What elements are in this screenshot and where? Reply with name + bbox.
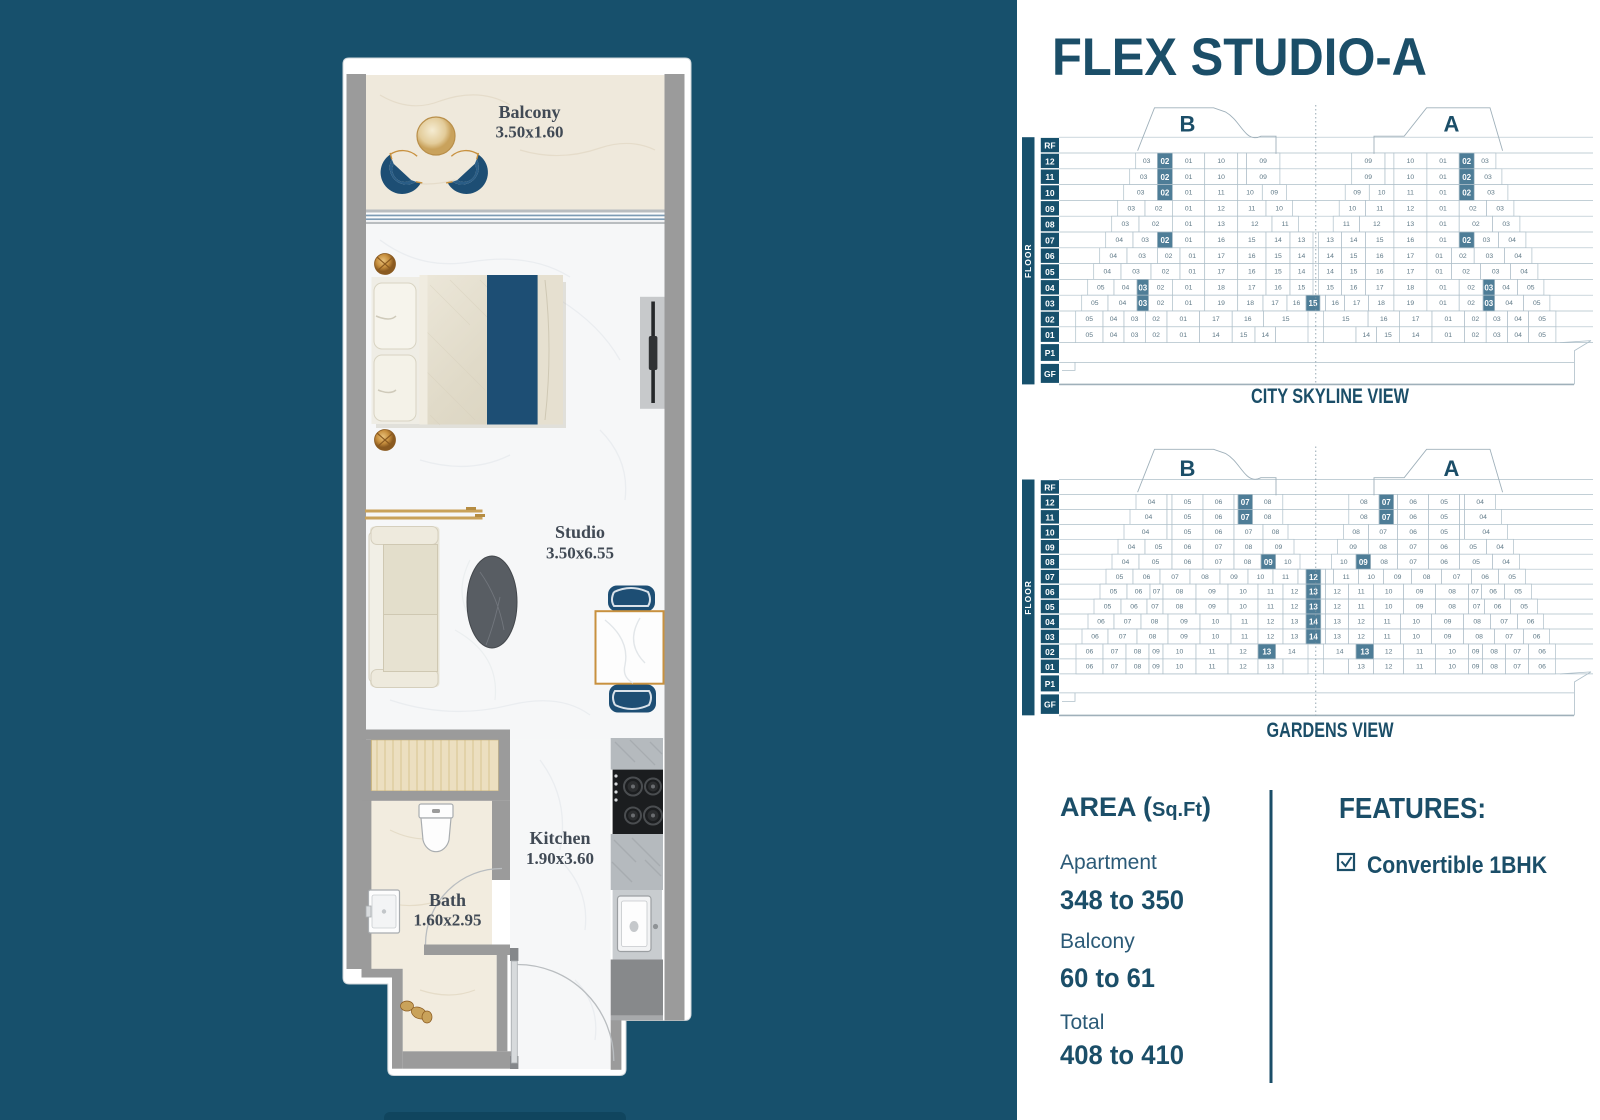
svg-text:13: 13 xyxy=(1357,664,1365,671)
svg-text:05: 05 xyxy=(1045,602,1055,612)
svg-text:06: 06 xyxy=(1091,634,1099,641)
svg-text:03: 03 xyxy=(1131,316,1139,323)
svg-text:03: 03 xyxy=(1138,299,1147,308)
svg-text:03: 03 xyxy=(1138,253,1146,260)
svg-text:3.50x6.55: 3.50x6.55 xyxy=(546,544,614,563)
svg-text:P1: P1 xyxy=(1045,679,1056,689)
svg-text:02: 02 xyxy=(1160,173,1169,182)
svg-text:05: 05 xyxy=(1116,574,1124,581)
svg-text:03: 03 xyxy=(1132,269,1140,276)
svg-text:01: 01 xyxy=(1185,284,1193,291)
svg-text:05: 05 xyxy=(1440,499,1448,506)
svg-text:Balcony: Balcony xyxy=(1060,930,1135,953)
svg-text:10: 10 xyxy=(1176,664,1184,671)
svg-text:03: 03 xyxy=(1131,332,1139,339)
svg-text:14: 14 xyxy=(1212,332,1220,339)
svg-text:14: 14 xyxy=(1336,649,1344,656)
svg-text:03: 03 xyxy=(1484,174,1492,181)
svg-text:12: 12 xyxy=(1217,205,1225,212)
svg-text:03: 03 xyxy=(1492,269,1500,276)
svg-text:01: 01 xyxy=(1185,221,1193,228)
svg-text:10: 10 xyxy=(1045,188,1055,198)
svg-text:04: 04 xyxy=(1476,499,1484,506)
svg-text:02: 02 xyxy=(1469,205,1477,212)
svg-text:01: 01 xyxy=(1439,221,1447,228)
svg-text:10: 10 xyxy=(1212,634,1220,641)
svg-text:04: 04 xyxy=(1045,617,1055,627)
svg-text:10: 10 xyxy=(1239,589,1247,596)
svg-text:06: 06 xyxy=(1481,574,1489,581)
svg-text:05: 05 xyxy=(1086,332,1094,339)
svg-text:10: 10 xyxy=(1275,205,1283,212)
svg-text:07: 07 xyxy=(1119,634,1127,641)
svg-text:07: 07 xyxy=(1111,649,1119,656)
svg-text:09: 09 xyxy=(1365,174,1373,181)
svg-text:08: 08 xyxy=(1272,529,1280,536)
svg-text:06: 06 xyxy=(1086,664,1094,671)
svg-text:17: 17 xyxy=(1407,253,1415,260)
svg-text:10: 10 xyxy=(1412,634,1420,641)
svg-text:05: 05 xyxy=(1155,544,1163,551)
svg-text:10: 10 xyxy=(1407,174,1415,181)
svg-text:02: 02 xyxy=(1152,221,1160,228)
svg-text:07: 07 xyxy=(1215,559,1223,566)
svg-text:05: 05 xyxy=(1184,499,1192,506)
svg-text:04: 04 xyxy=(1508,237,1516,244)
svg-text:07: 07 xyxy=(1241,513,1250,522)
svg-text:15: 15 xyxy=(1350,269,1358,276)
svg-text:01: 01 xyxy=(1185,190,1193,197)
svg-text:04: 04 xyxy=(1145,514,1153,521)
svg-text:10: 10 xyxy=(1385,604,1393,611)
svg-text:16: 16 xyxy=(1248,253,1256,260)
svg-text:04: 04 xyxy=(1104,269,1112,276)
svg-text:02: 02 xyxy=(1462,236,1471,245)
svg-text:11: 11 xyxy=(1282,574,1289,581)
svg-text:04: 04 xyxy=(1142,529,1150,536)
svg-text:14: 14 xyxy=(1288,649,1296,656)
svg-text:05: 05 xyxy=(1469,544,1477,551)
svg-text:14: 14 xyxy=(1326,269,1334,276)
svg-text:06: 06 xyxy=(1086,649,1094,656)
svg-text:14: 14 xyxy=(1412,332,1420,339)
svg-text:10: 10 xyxy=(1217,158,1225,165)
svg-text:03: 03 xyxy=(1486,253,1494,260)
svg-text:06: 06 xyxy=(1538,649,1546,656)
svg-text:07: 07 xyxy=(1409,559,1417,566)
svg-text:01: 01 xyxy=(1435,269,1443,276)
svg-text:10: 10 xyxy=(1367,574,1375,581)
svg-text:07: 07 xyxy=(1513,649,1521,656)
svg-text:04: 04 xyxy=(1505,300,1513,307)
svg-text:09: 09 xyxy=(1349,544,1357,551)
svg-text:07: 07 xyxy=(1215,544,1223,551)
svg-text:15: 15 xyxy=(1274,269,1282,276)
svg-text:05: 05 xyxy=(1045,267,1055,277)
svg-text:Bath: Bath xyxy=(429,890,466,910)
svg-text:06: 06 xyxy=(1440,559,1448,566)
svg-text:16: 16 xyxy=(1274,284,1282,291)
svg-text:04: 04 xyxy=(1045,283,1055,293)
svg-text:07: 07 xyxy=(1153,589,1161,596)
svg-text:10: 10 xyxy=(1385,589,1393,596)
svg-text:09: 09 xyxy=(1152,649,1160,656)
svg-text:07: 07 xyxy=(1111,664,1119,671)
svg-text:03: 03 xyxy=(1128,205,1136,212)
svg-text:06: 06 xyxy=(1045,251,1055,261)
svg-text:03: 03 xyxy=(1138,283,1147,292)
svg-text:17: 17 xyxy=(1376,284,1384,291)
svg-text:10: 10 xyxy=(1448,649,1456,656)
svg-text:15: 15 xyxy=(1376,237,1384,244)
svg-text:02: 02 xyxy=(1459,253,1467,260)
svg-text:02: 02 xyxy=(1165,253,1173,260)
svg-text:06: 06 xyxy=(1489,589,1497,596)
svg-text:05: 05 xyxy=(1538,316,1546,323)
svg-text:13: 13 xyxy=(1333,634,1341,641)
svg-text:08: 08 xyxy=(1360,514,1368,521)
svg-text:14: 14 xyxy=(1326,253,1334,260)
svg-text:05: 05 xyxy=(1104,604,1112,611)
svg-text:12: 12 xyxy=(1291,604,1299,611)
svg-text:408 to 410: 408 to 410 xyxy=(1060,1040,1184,1070)
svg-text:12: 12 xyxy=(1267,634,1275,641)
svg-text:Studio: Studio xyxy=(555,522,605,542)
svg-text:11: 11 xyxy=(1376,205,1383,212)
svg-text:17: 17 xyxy=(1217,253,1225,260)
svg-text:13: 13 xyxy=(1309,588,1318,597)
svg-text:05: 05 xyxy=(1184,529,1192,536)
svg-text:RF: RF xyxy=(1044,141,1055,151)
svg-text:01: 01 xyxy=(1045,662,1055,672)
svg-text:09: 09 xyxy=(1444,619,1452,626)
svg-text:06: 06 xyxy=(1538,664,1546,671)
svg-text:09: 09 xyxy=(1259,174,1267,181)
svg-text:05: 05 xyxy=(1440,514,1448,521)
svg-text:15: 15 xyxy=(1309,299,1318,308)
svg-text:11: 11 xyxy=(1358,604,1365,611)
svg-text:A: A xyxy=(1444,112,1460,137)
svg-text:08: 08 xyxy=(1264,499,1272,506)
svg-text:14: 14 xyxy=(1262,332,1270,339)
svg-text:3.50x1.60: 3.50x1.60 xyxy=(496,123,564,142)
svg-text:12: 12 xyxy=(1239,664,1247,671)
svg-text:FLOOR: FLOOR xyxy=(1023,243,1033,278)
svg-text:10: 10 xyxy=(1340,559,1348,566)
svg-text:11: 11 xyxy=(1045,512,1054,522)
svg-text:Kitchen: Kitchen xyxy=(530,828,591,848)
svg-text:08: 08 xyxy=(1264,514,1272,521)
svg-text:10: 10 xyxy=(1212,619,1220,626)
svg-text:FLEX STUDIO-A: FLEX STUDIO-A xyxy=(1052,28,1427,87)
svg-text:06: 06 xyxy=(1130,604,1138,611)
svg-text:08: 08 xyxy=(1475,634,1483,641)
svg-text:03: 03 xyxy=(1141,237,1149,244)
svg-text:11: 11 xyxy=(1267,604,1274,611)
svg-text:09: 09 xyxy=(1472,664,1480,671)
svg-text:12: 12 xyxy=(1333,604,1341,611)
svg-text:05: 05 xyxy=(1527,284,1535,291)
svg-text:01: 01 xyxy=(1185,300,1193,307)
svg-text:10: 10 xyxy=(1448,664,1456,671)
svg-text:04: 04 xyxy=(1479,514,1487,521)
svg-text:12: 12 xyxy=(1251,221,1259,228)
svg-text:02: 02 xyxy=(1160,189,1169,198)
svg-text:04: 04 xyxy=(1116,237,1124,244)
svg-text:11: 11 xyxy=(1218,190,1225,197)
svg-text:08: 08 xyxy=(1360,499,1368,506)
svg-text:08: 08 xyxy=(1423,574,1431,581)
svg-text:04: 04 xyxy=(1496,544,1504,551)
svg-text:1.90x3.60: 1.90x3.60 xyxy=(526,849,594,868)
svg-text:04: 04 xyxy=(1148,499,1156,506)
svg-text:10: 10 xyxy=(1217,174,1225,181)
svg-text:09: 09 xyxy=(1444,634,1452,641)
svg-text:14: 14 xyxy=(1298,253,1306,260)
svg-text:02: 02 xyxy=(1045,647,1055,657)
svg-text:04: 04 xyxy=(1514,316,1522,323)
svg-text:09: 09 xyxy=(1365,158,1373,165)
svg-text:02: 02 xyxy=(1472,316,1480,323)
svg-text:07: 07 xyxy=(1045,572,1055,582)
svg-text:03: 03 xyxy=(1502,221,1510,228)
svg-text:06: 06 xyxy=(1135,589,1143,596)
svg-text:CITY SKYLINE VIEW: CITY SKYLINE VIEW xyxy=(1251,385,1409,408)
svg-text:16: 16 xyxy=(1380,316,1388,323)
svg-text:01: 01 xyxy=(1185,237,1193,244)
svg-text:06: 06 xyxy=(1533,634,1541,641)
svg-text:09: 09 xyxy=(1275,544,1283,551)
svg-text:09: 09 xyxy=(1271,190,1279,197)
svg-text:15: 15 xyxy=(1350,253,1358,260)
svg-text:02: 02 xyxy=(1152,332,1160,339)
svg-text:10: 10 xyxy=(1284,559,1292,566)
svg-text:09: 09 xyxy=(1416,589,1424,596)
svg-text:02: 02 xyxy=(1160,236,1169,245)
svg-text:11: 11 xyxy=(1248,205,1255,212)
svg-text:02: 02 xyxy=(1462,269,1470,276)
svg-text:16: 16 xyxy=(1407,237,1415,244)
svg-text:14: 14 xyxy=(1298,269,1306,276)
svg-text:02: 02 xyxy=(1467,300,1475,307)
svg-text:08: 08 xyxy=(1473,619,1481,626)
svg-text:07: 07 xyxy=(1045,235,1055,245)
svg-text:19: 19 xyxy=(1407,300,1415,307)
svg-text:05: 05 xyxy=(1538,332,1546,339)
svg-text:10: 10 xyxy=(1378,190,1386,197)
svg-text:17: 17 xyxy=(1407,269,1415,276)
svg-text:07: 07 xyxy=(1124,619,1132,626)
svg-text:02: 02 xyxy=(1152,316,1160,323)
svg-text:08: 08 xyxy=(1379,544,1387,551)
svg-text:12: 12 xyxy=(1309,573,1318,582)
svg-text:09: 09 xyxy=(1180,619,1188,626)
svg-text:B: B xyxy=(1179,112,1195,137)
svg-text:12: 12 xyxy=(1385,664,1393,671)
svg-text:02: 02 xyxy=(1472,332,1480,339)
svg-text:18: 18 xyxy=(1407,284,1415,291)
svg-text:04: 04 xyxy=(1502,559,1510,566)
svg-text:04: 04 xyxy=(1122,559,1130,566)
svg-text:GARDENS VIEW: GARDENS VIEW xyxy=(1267,719,1394,742)
svg-text:04: 04 xyxy=(1514,332,1522,339)
svg-text:07: 07 xyxy=(1171,574,1179,581)
svg-text:12: 12 xyxy=(1357,634,1365,641)
svg-text:06: 06 xyxy=(1215,499,1223,506)
svg-text:04: 04 xyxy=(1110,332,1118,339)
svg-text:11: 11 xyxy=(1241,634,1248,641)
svg-text:03: 03 xyxy=(1143,158,1151,165)
svg-text:01: 01 xyxy=(1045,330,1055,340)
svg-text:09: 09 xyxy=(1152,664,1160,671)
svg-text:RF: RF xyxy=(1044,483,1055,493)
svg-text:07: 07 xyxy=(1151,604,1159,611)
svg-text:12: 12 xyxy=(1291,589,1299,596)
svg-text:04: 04 xyxy=(1119,300,1127,307)
svg-text:01: 01 xyxy=(1435,253,1443,260)
svg-text:01: 01 xyxy=(1439,300,1447,307)
svg-text:GF: GF xyxy=(1044,700,1056,710)
svg-text:07: 07 xyxy=(1513,664,1521,671)
svg-text:07: 07 xyxy=(1471,589,1479,596)
svg-text:02: 02 xyxy=(1462,157,1471,166)
svg-text:08: 08 xyxy=(1490,649,1498,656)
svg-text:11: 11 xyxy=(1343,221,1350,228)
svg-text:12: 12 xyxy=(1267,619,1275,626)
svg-text:11: 11 xyxy=(1343,574,1350,581)
svg-text:14: 14 xyxy=(1309,633,1318,642)
svg-text:07: 07 xyxy=(1409,544,1417,551)
svg-text:13: 13 xyxy=(1291,619,1299,626)
svg-text:15: 15 xyxy=(1274,253,1282,260)
svg-text:05: 05 xyxy=(1514,589,1522,596)
svg-text:01: 01 xyxy=(1185,158,1193,165)
svg-text:10: 10 xyxy=(1045,527,1055,537)
svg-text:05: 05 xyxy=(1091,300,1099,307)
svg-text:06: 06 xyxy=(1409,529,1417,536)
svg-text:17: 17 xyxy=(1217,269,1225,276)
svg-text:13: 13 xyxy=(1360,648,1369,657)
svg-text:01: 01 xyxy=(1445,316,1453,323)
svg-text:12: 12 xyxy=(1373,221,1381,228)
svg-text:Total: Total xyxy=(1060,1011,1104,1034)
svg-text:09: 09 xyxy=(1208,589,1216,596)
svg-text:06: 06 xyxy=(1045,587,1055,597)
svg-text:07: 07 xyxy=(1505,634,1513,641)
svg-text:60 to 61: 60 to 61 xyxy=(1060,963,1155,993)
svg-text:08: 08 xyxy=(1149,634,1157,641)
svg-text:10: 10 xyxy=(1349,205,1357,212)
svg-text:04: 04 xyxy=(1514,253,1522,260)
svg-text:18: 18 xyxy=(1217,284,1225,291)
svg-text:01: 01 xyxy=(1189,269,1197,276)
svg-text:17: 17 xyxy=(1212,316,1220,323)
svg-text:04: 04 xyxy=(1520,269,1528,276)
svg-text:05: 05 xyxy=(1472,559,1480,566)
svg-text:15: 15 xyxy=(1282,316,1290,323)
svg-text:13: 13 xyxy=(1407,221,1415,228)
svg-text:11: 11 xyxy=(1384,634,1391,641)
svg-text:08: 08 xyxy=(1448,604,1456,611)
svg-text:09: 09 xyxy=(1264,558,1273,567)
svg-text:04: 04 xyxy=(1110,253,1118,260)
svg-text:02: 02 xyxy=(1467,284,1475,291)
svg-text:13: 13 xyxy=(1267,664,1275,671)
svg-text:06: 06 xyxy=(1097,619,1105,626)
svg-text:11: 11 xyxy=(1045,172,1054,182)
svg-text:08: 08 xyxy=(1176,589,1184,596)
svg-text:13: 13 xyxy=(1217,221,1225,228)
svg-text:15: 15 xyxy=(1384,332,1392,339)
svg-text:06: 06 xyxy=(1409,514,1417,521)
svg-text:03: 03 xyxy=(1484,283,1493,292)
svg-text:09: 09 xyxy=(1359,558,1368,567)
svg-text:17: 17 xyxy=(1248,284,1256,291)
svg-text:07: 07 xyxy=(1500,619,1508,626)
svg-text:07: 07 xyxy=(1453,574,1461,581)
svg-text:09: 09 xyxy=(1230,574,1238,581)
svg-text:12: 12 xyxy=(1239,649,1247,656)
svg-text:08: 08 xyxy=(1244,559,1252,566)
svg-text:17: 17 xyxy=(1271,300,1279,307)
svg-text:03: 03 xyxy=(1484,299,1493,308)
svg-text:05: 05 xyxy=(1440,529,1448,536)
svg-text:08: 08 xyxy=(1045,557,1055,567)
svg-text:09: 09 xyxy=(1180,634,1188,641)
svg-text:16: 16 xyxy=(1376,253,1384,260)
svg-text:16: 16 xyxy=(1350,284,1358,291)
svg-text:11: 11 xyxy=(1407,190,1414,197)
svg-text:04: 04 xyxy=(1482,529,1490,536)
svg-text:Apartment: Apartment xyxy=(1060,851,1157,874)
svg-text:02: 02 xyxy=(1157,284,1165,291)
svg-text:P1: P1 xyxy=(1045,348,1056,358)
svg-text:11: 11 xyxy=(1358,589,1365,596)
svg-text:16: 16 xyxy=(1217,237,1225,244)
svg-text:14: 14 xyxy=(1309,618,1318,627)
svg-text:15: 15 xyxy=(1298,284,1306,291)
svg-text:02: 02 xyxy=(1160,157,1169,166)
svg-text:Balcony: Balcony xyxy=(498,102,560,122)
svg-text:05: 05 xyxy=(1508,574,1516,581)
svg-text:06: 06 xyxy=(1527,619,1535,626)
svg-text:17: 17 xyxy=(1353,300,1361,307)
svg-text:12: 12 xyxy=(1357,619,1365,626)
svg-text:348 to 350: 348 to 350 xyxy=(1060,885,1184,915)
svg-text:09: 09 xyxy=(1394,574,1402,581)
svg-text:09: 09 xyxy=(1353,190,1361,197)
svg-text:04: 04 xyxy=(1122,284,1130,291)
svg-text:03: 03 xyxy=(1493,316,1501,323)
svg-text:09: 09 xyxy=(1416,604,1424,611)
svg-text:05: 05 xyxy=(1184,514,1192,521)
svg-text:03: 03 xyxy=(1493,332,1501,339)
svg-text:16: 16 xyxy=(1293,300,1301,307)
svg-text:13: 13 xyxy=(1309,603,1318,612)
svg-text:06: 06 xyxy=(1409,499,1417,506)
svg-text:16: 16 xyxy=(1248,269,1256,276)
svg-text:18: 18 xyxy=(1247,300,1255,307)
svg-text:08: 08 xyxy=(1134,664,1142,671)
svg-text:16: 16 xyxy=(1331,300,1339,307)
svg-text:06: 06 xyxy=(1184,559,1192,566)
svg-text:06: 06 xyxy=(1215,529,1223,536)
svg-text:16: 16 xyxy=(1376,269,1384,276)
svg-text:14: 14 xyxy=(1363,332,1371,339)
svg-text:02: 02 xyxy=(1462,189,1471,198)
svg-text:07: 07 xyxy=(1245,529,1253,536)
svg-text:01: 01 xyxy=(1439,158,1447,165)
